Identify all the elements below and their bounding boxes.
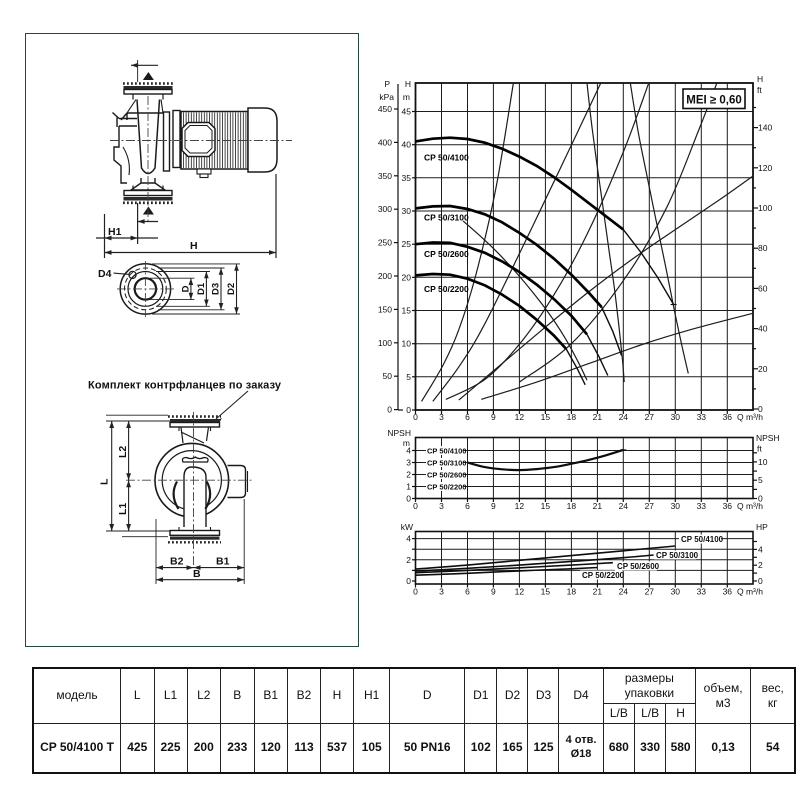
svg-text:21: 21 xyxy=(593,501,603,511)
svg-text:150: 150 xyxy=(378,304,392,314)
svg-text:CP 50/4100: CP 50/4100 xyxy=(427,447,466,456)
svg-text:9: 9 xyxy=(491,501,496,511)
svg-text:30: 30 xyxy=(671,501,681,511)
svg-text:HP: HP xyxy=(756,522,768,532)
svg-text:4: 4 xyxy=(406,446,411,456)
svg-text:CP 50/4100: CP 50/4100 xyxy=(424,153,469,163)
svg-text:H: H xyxy=(405,79,411,89)
svg-text:B2: B2 xyxy=(170,556,184,568)
svg-text:21: 21 xyxy=(593,587,603,597)
svg-text:D2: D2 xyxy=(226,283,237,295)
svg-text:D: D xyxy=(180,285,191,292)
svg-text:NPSH: NPSH xyxy=(387,428,411,438)
svg-text:L: L xyxy=(99,478,111,485)
svg-text:15: 15 xyxy=(541,587,551,597)
svg-text:33: 33 xyxy=(697,587,707,597)
svg-text:B: B xyxy=(193,568,201,580)
svg-text:35: 35 xyxy=(402,173,412,183)
svg-text:0: 0 xyxy=(406,494,411,504)
svg-text:36: 36 xyxy=(723,501,733,511)
svg-text:30: 30 xyxy=(402,206,412,216)
svg-text:120: 120 xyxy=(758,163,772,173)
svg-text:D3: D3 xyxy=(210,283,221,295)
svg-text:50: 50 xyxy=(383,371,393,381)
svg-text:350: 350 xyxy=(378,171,392,181)
svg-text:ft: ft xyxy=(757,444,762,454)
svg-text:L2: L2 xyxy=(117,446,129,458)
svg-text:30: 30 xyxy=(671,587,681,597)
svg-text:6: 6 xyxy=(465,501,470,511)
svg-text:H: H xyxy=(190,240,198,252)
svg-text:0: 0 xyxy=(758,576,763,586)
svg-text:400: 400 xyxy=(378,137,392,147)
svg-text:Q m³/h: Q m³/h xyxy=(737,412,763,422)
svg-text:3: 3 xyxy=(406,458,411,468)
svg-text:27: 27 xyxy=(645,501,655,511)
svg-text:20: 20 xyxy=(758,364,768,374)
svg-text:12: 12 xyxy=(515,501,525,511)
svg-text:0: 0 xyxy=(406,405,411,415)
svg-text:2: 2 xyxy=(406,555,411,565)
svg-text:45: 45 xyxy=(402,107,412,117)
svg-text:3: 3 xyxy=(439,501,444,511)
svg-text:18: 18 xyxy=(567,501,577,511)
svg-text:CP 50/2200: CP 50/2200 xyxy=(424,284,469,294)
svg-text:ft: ft xyxy=(757,85,762,95)
svg-text:18: 18 xyxy=(567,587,577,597)
svg-text:15: 15 xyxy=(402,306,412,316)
svg-text:100: 100 xyxy=(758,203,772,213)
svg-text:24: 24 xyxy=(619,587,629,597)
svg-text:Q m³/h: Q m³/h xyxy=(737,501,763,511)
svg-text:1: 1 xyxy=(406,482,411,492)
svg-text:25: 25 xyxy=(402,239,412,249)
svg-text:0: 0 xyxy=(406,576,411,586)
svg-text:4: 4 xyxy=(758,544,763,554)
svg-text:MEI ≥ 0,60: MEI ≥ 0,60 xyxy=(686,94,742,106)
svg-text:CP 50/2600: CP 50/2600 xyxy=(424,249,469,259)
svg-text:9: 9 xyxy=(491,587,496,597)
svg-text:4: 4 xyxy=(406,534,411,544)
svg-text:L1: L1 xyxy=(117,503,129,515)
svg-text:CP 50/3100: CP 50/3100 xyxy=(427,459,466,468)
svg-text:kPa: kPa xyxy=(379,92,394,102)
svg-text:80: 80 xyxy=(758,243,768,253)
svg-text:CP 50/2600: CP 50/2600 xyxy=(617,562,660,571)
svg-text:3: 3 xyxy=(439,587,444,597)
svg-text:CP 50/4100: CP 50/4100 xyxy=(681,535,724,544)
svg-text:CP 50/2200: CP 50/2200 xyxy=(582,571,625,580)
svg-text:20: 20 xyxy=(402,272,412,282)
svg-text:NPSH: NPSH xyxy=(756,433,780,443)
svg-text:27: 27 xyxy=(645,587,655,597)
svg-text:2: 2 xyxy=(406,470,411,480)
svg-text:D1: D1 xyxy=(196,282,207,295)
svg-text:40: 40 xyxy=(402,140,412,150)
svg-text:5: 5 xyxy=(406,372,411,382)
svg-text:100: 100 xyxy=(378,338,392,348)
svg-text:0: 0 xyxy=(387,405,392,415)
svg-text:P: P xyxy=(384,79,390,89)
svg-text:0: 0 xyxy=(413,501,418,511)
svg-text:0: 0 xyxy=(413,587,418,597)
svg-text:15: 15 xyxy=(541,501,551,511)
svg-text:24: 24 xyxy=(619,501,629,511)
svg-text:5: 5 xyxy=(758,475,763,485)
svg-text:m: m xyxy=(403,92,410,102)
svg-text:CP 50/2200: CP 50/2200 xyxy=(427,483,466,492)
svg-text:36: 36 xyxy=(723,587,733,597)
svg-text:250: 250 xyxy=(378,238,392,248)
svg-text:CP 50/3100: CP 50/3100 xyxy=(656,551,699,560)
svg-text:6: 6 xyxy=(465,587,470,597)
svg-text:40: 40 xyxy=(758,324,768,334)
svg-text:CP 50/3100: CP 50/3100 xyxy=(424,213,469,223)
svg-text:H1: H1 xyxy=(108,226,122,238)
svg-text:140: 140 xyxy=(758,123,772,133)
svg-text:B1: B1 xyxy=(216,556,230,568)
svg-text:kW: kW xyxy=(401,522,413,532)
svg-text:450: 450 xyxy=(378,104,392,114)
svg-text:H: H xyxy=(757,74,763,84)
svg-text:2: 2 xyxy=(758,560,763,570)
svg-text:33: 33 xyxy=(697,501,707,511)
svg-text:Q m³/h: Q m³/h xyxy=(737,587,763,597)
svg-text:10: 10 xyxy=(758,457,768,467)
svg-text:CP 50/2600: CP 50/2600 xyxy=(427,471,466,480)
svg-text:D4: D4 xyxy=(98,268,112,280)
svg-text:60: 60 xyxy=(758,283,768,293)
svg-text:10: 10 xyxy=(402,339,412,349)
svg-text:300: 300 xyxy=(378,204,392,214)
svg-text:200: 200 xyxy=(378,271,392,281)
svg-text:Комплект контрфланцев по заказ: Комплект контрфланцев по заказу xyxy=(88,380,282,392)
svg-text:12: 12 xyxy=(515,587,525,597)
